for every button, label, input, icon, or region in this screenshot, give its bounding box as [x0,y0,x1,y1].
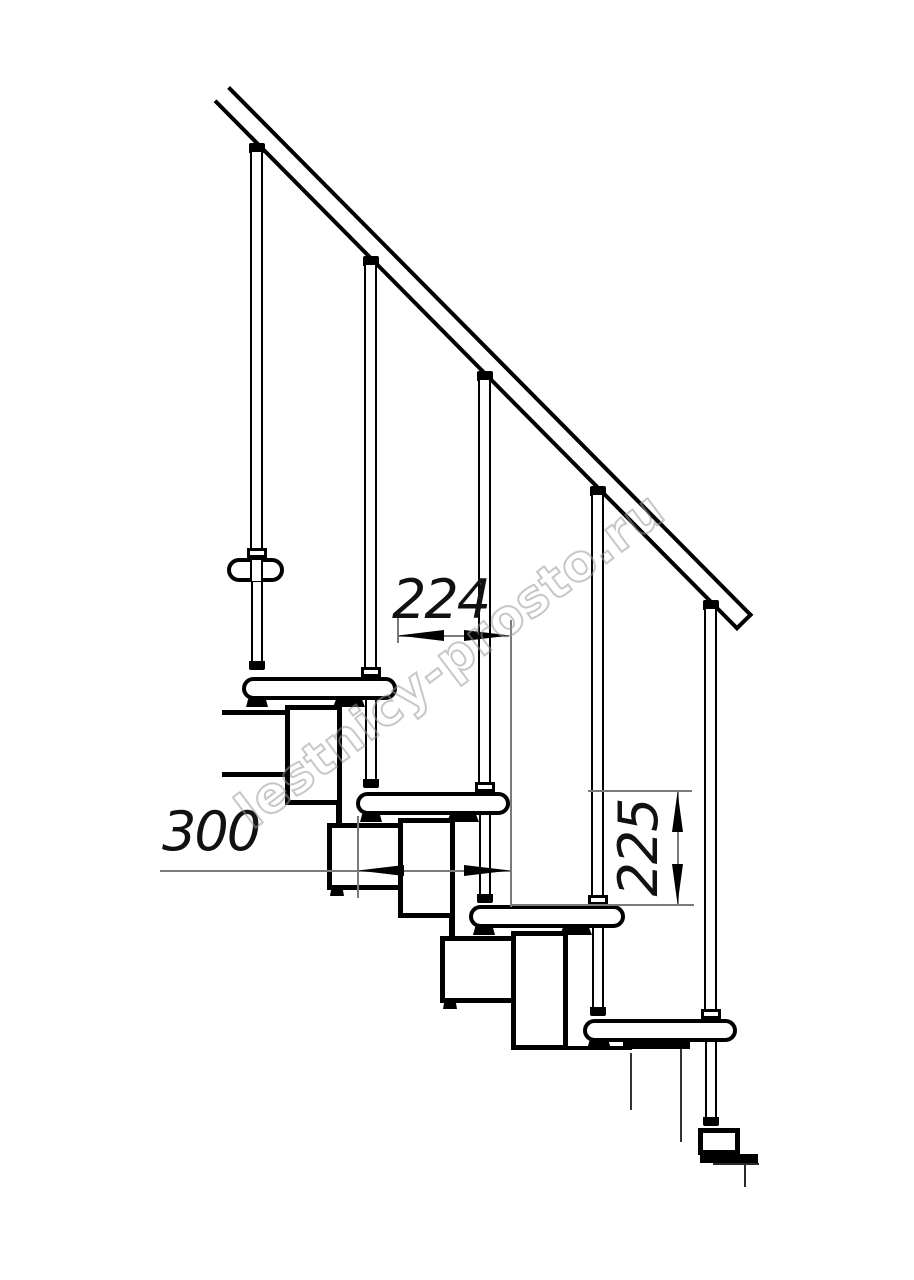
tread-4 [469,905,625,928]
tread-4-foot-right [560,927,592,935]
baluster-1-bolt [251,582,263,661]
dim-300-label: 300 [162,800,259,863]
dim-225-extension-bottom [510,904,694,906]
module-foot-2 [443,1001,457,1009]
baluster-1-shaft [250,152,263,548]
floor-step-line-v [744,1163,746,1187]
baluster-2-tread-boss [361,667,381,677]
baluster-2-bolt [365,700,377,779]
module-continuation-line-2 [680,1045,682,1142]
step-module-channel-2 [398,818,455,918]
baluster-5-tread-boss [701,1009,721,1019]
dim-224-label: 224 [392,568,489,631]
tread-3-foot-left [360,814,382,822]
dim-224-arrow-left [398,630,444,641]
baluster-3-bolt [479,815,491,894]
floor-step-line-h [713,1163,759,1165]
step-module-channel-1 [285,705,342,805]
baluster-5-bolt [705,1042,717,1117]
technical-drawing-canvas: 224 300 225 lestnicy-prosto.ru [0,0,914,1280]
baluster-1-tread-boss [247,548,267,558]
dim-224-extension-right [510,620,512,907]
tread-3 [356,792,510,815]
floor-mount-feet [700,1154,758,1163]
baluster-2-bolt-cap [363,779,379,788]
tread-3-foot-right [447,814,479,822]
tread-2-foot-left [246,699,268,707]
step-module-channel-3 [511,931,568,1050]
dim-225-label: 225 [607,799,670,896]
tread-5-foot-left [587,1041,611,1049]
step-module-box-1 [327,823,405,890]
tread-4-foot-left [473,927,495,935]
baluster-3-bolt-cap [477,894,493,903]
baluster-4-bolt [592,928,604,1007]
tread-5 [583,1019,737,1042]
module-continuation-line-1 [630,1053,632,1110]
step-module-box-2 [440,936,518,1003]
step-module-upper-partial [222,710,292,777]
baluster-1-bolt-cap [249,661,265,670]
baluster-3-tread-boss [475,782,495,792]
dim-225-label-wrap: 225 [583,793,693,903]
dim-300-line [160,870,510,872]
tread-5-foot-strip [623,1042,690,1049]
floor-mount-block [698,1128,740,1155]
tread-2 [242,677,397,700]
baluster-5-shaft [704,609,717,1009]
dim-300-extension-left [357,816,359,898]
baluster-1-through-tread [250,560,263,581]
tread-2-foot-right [333,699,365,707]
baluster-5-bolt-cap [703,1117,719,1126]
module-foot-1 [330,888,344,896]
baluster-4-bolt-cap [590,1007,606,1016]
baluster-2-shaft [364,265,377,667]
